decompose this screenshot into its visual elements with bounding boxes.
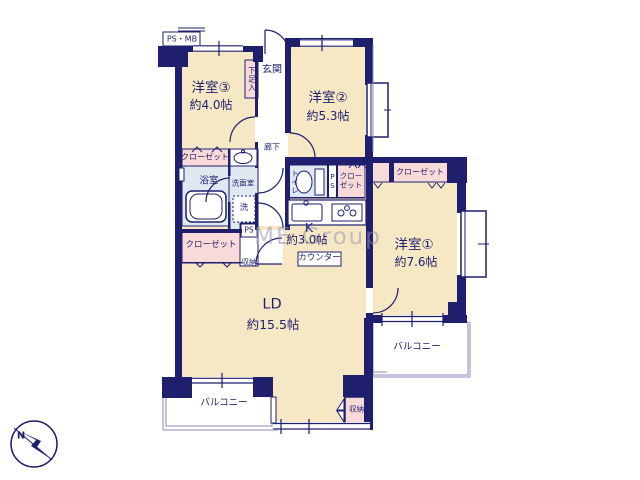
ld-size: 約15.5帖 <box>247 318 300 332</box>
closet-label-kitchen: クローゼット <box>338 172 364 189</box>
shower-fixture <box>179 168 184 181</box>
entrance-label: 玄関 <box>262 64 282 76</box>
room1-name: 洋室① <box>394 238 433 254</box>
pipe-space-label-kitchen: PS <box>328 173 336 191</box>
storage-label-nook: 収納 <box>242 259 257 268</box>
ld-name: LD <box>262 297 281 314</box>
toilet-label: トイレ <box>290 169 299 195</box>
washroom-label: 洗面室 <box>232 180 255 189</box>
counter-label: カウンター <box>298 254 341 264</box>
pipe-space-label-washroom: PS <box>244 227 253 236</box>
floor-plan: PS・MB 洋室③ 約4.0帖 玄関 下足入 廊下 洋室② 約5.3帖 クローゼ… <box>0 0 640 480</box>
closet-label-ld: クローゼット <box>185 241 236 251</box>
balcony-label-left: バルコニー <box>200 399 247 410</box>
closet-label-room1: クローゼット <box>396 167 444 176</box>
kitchen-size: 約3.0帖 <box>286 233 327 246</box>
room1-size: 約7.6帖 <box>394 256 437 270</box>
room2-name: 洋室② <box>308 91 347 107</box>
shaft-label: PS・MB <box>167 34 197 43</box>
room3-name: 洋室③ <box>191 81 230 97</box>
room3-size: 約4.0帖 <box>189 99 232 113</box>
shoe-box-label: 下足入 <box>247 66 256 92</box>
compass-icon <box>11 421 57 467</box>
bathtub <box>186 191 226 222</box>
toilet-tank <box>315 169 324 195</box>
compass-north-label: N <box>17 430 25 442</box>
balcony-label-right: バルコニー <box>393 343 440 354</box>
bathroom-label: 浴室 <box>199 177 218 188</box>
room2-size: 約5.3帖 <box>306 110 349 124</box>
corridor-label: 廊下 <box>264 142 280 151</box>
storage-label-ld: 収納 <box>349 406 364 415</box>
laundry-label: 洗 <box>240 204 249 214</box>
closet-label-bath: クローゼット <box>181 152 229 161</box>
